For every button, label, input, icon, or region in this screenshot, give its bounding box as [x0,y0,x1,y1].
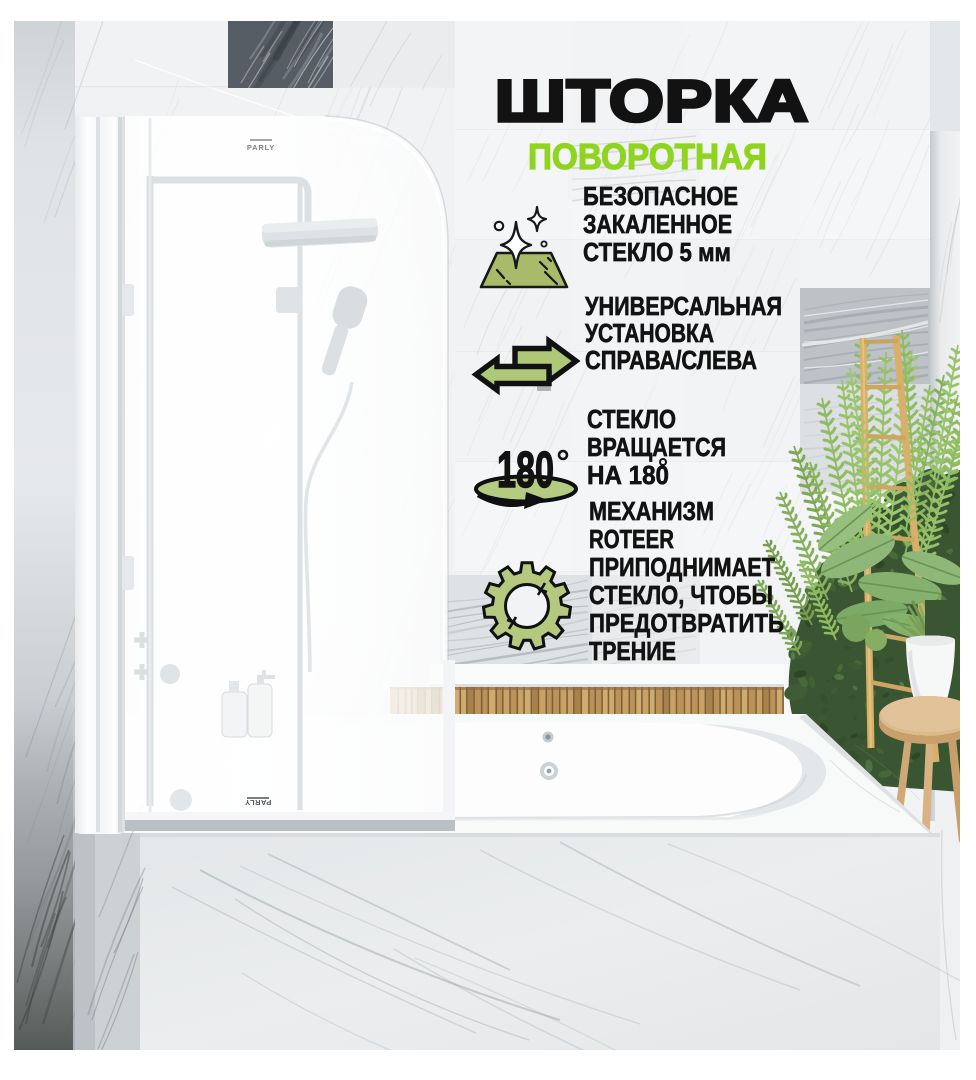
svg-text:ROTEER: ROTEER [589,524,674,554]
svg-text:УСТАНОВКА: УСТАНОВКА [585,318,714,348]
svg-text:БЕЗОПАСНОЕ: БЕЗОПАСНОЕ [583,181,738,211]
svg-text:НА 180: НА 180 [587,460,669,490]
svg-text:СТЕКЛО 5 мм: СТЕКЛО 5 мм [583,237,731,267]
svg-text:ПОВОРОТНАЯ: ПОВОРОТНАЯ [528,136,767,177]
svg-text:СПРАВА/СЛЕВА: СПРАВА/СЛЕВА [585,345,757,375]
svg-text:МЕХАНИЗМ: МЕХАНИЗМ [589,496,714,526]
svg-text:СТЕКЛО: СТЕКЛО [587,404,676,434]
svg-text:ШТОРКА: ШТОРКА [495,69,809,134]
svg-text:ПРЕДОТВРАТИТЬ: ПРЕДОТВРАТИТЬ [589,608,784,638]
svg-text:ТРЕНИЕ: ТРЕНИЕ [589,636,676,666]
svg-text:PARLY: PARLY [247,143,275,152]
svg-text:ВРАЩАЕТСЯ: ВРАЩАЕТСЯ [587,432,726,462]
svg-text:СТЕКЛО, ЧТОБЫ: СТЕКЛО, ЧТОБЫ [589,580,773,610]
svg-text:ЗАКАЛЕННОЕ: ЗАКАЛЕННОЕ [583,209,732,239]
svg-text:УНИВЕРСАЛЬНАЯ: УНИВЕРСАЛЬНАЯ [585,291,782,321]
svg-text:PARLY: PARLY [245,798,272,807]
svg-text:ПРИПОДНИМАЕТ: ПРИПОДНИМАЕТ [589,552,775,582]
svg-text:180: 180 [497,441,554,498]
